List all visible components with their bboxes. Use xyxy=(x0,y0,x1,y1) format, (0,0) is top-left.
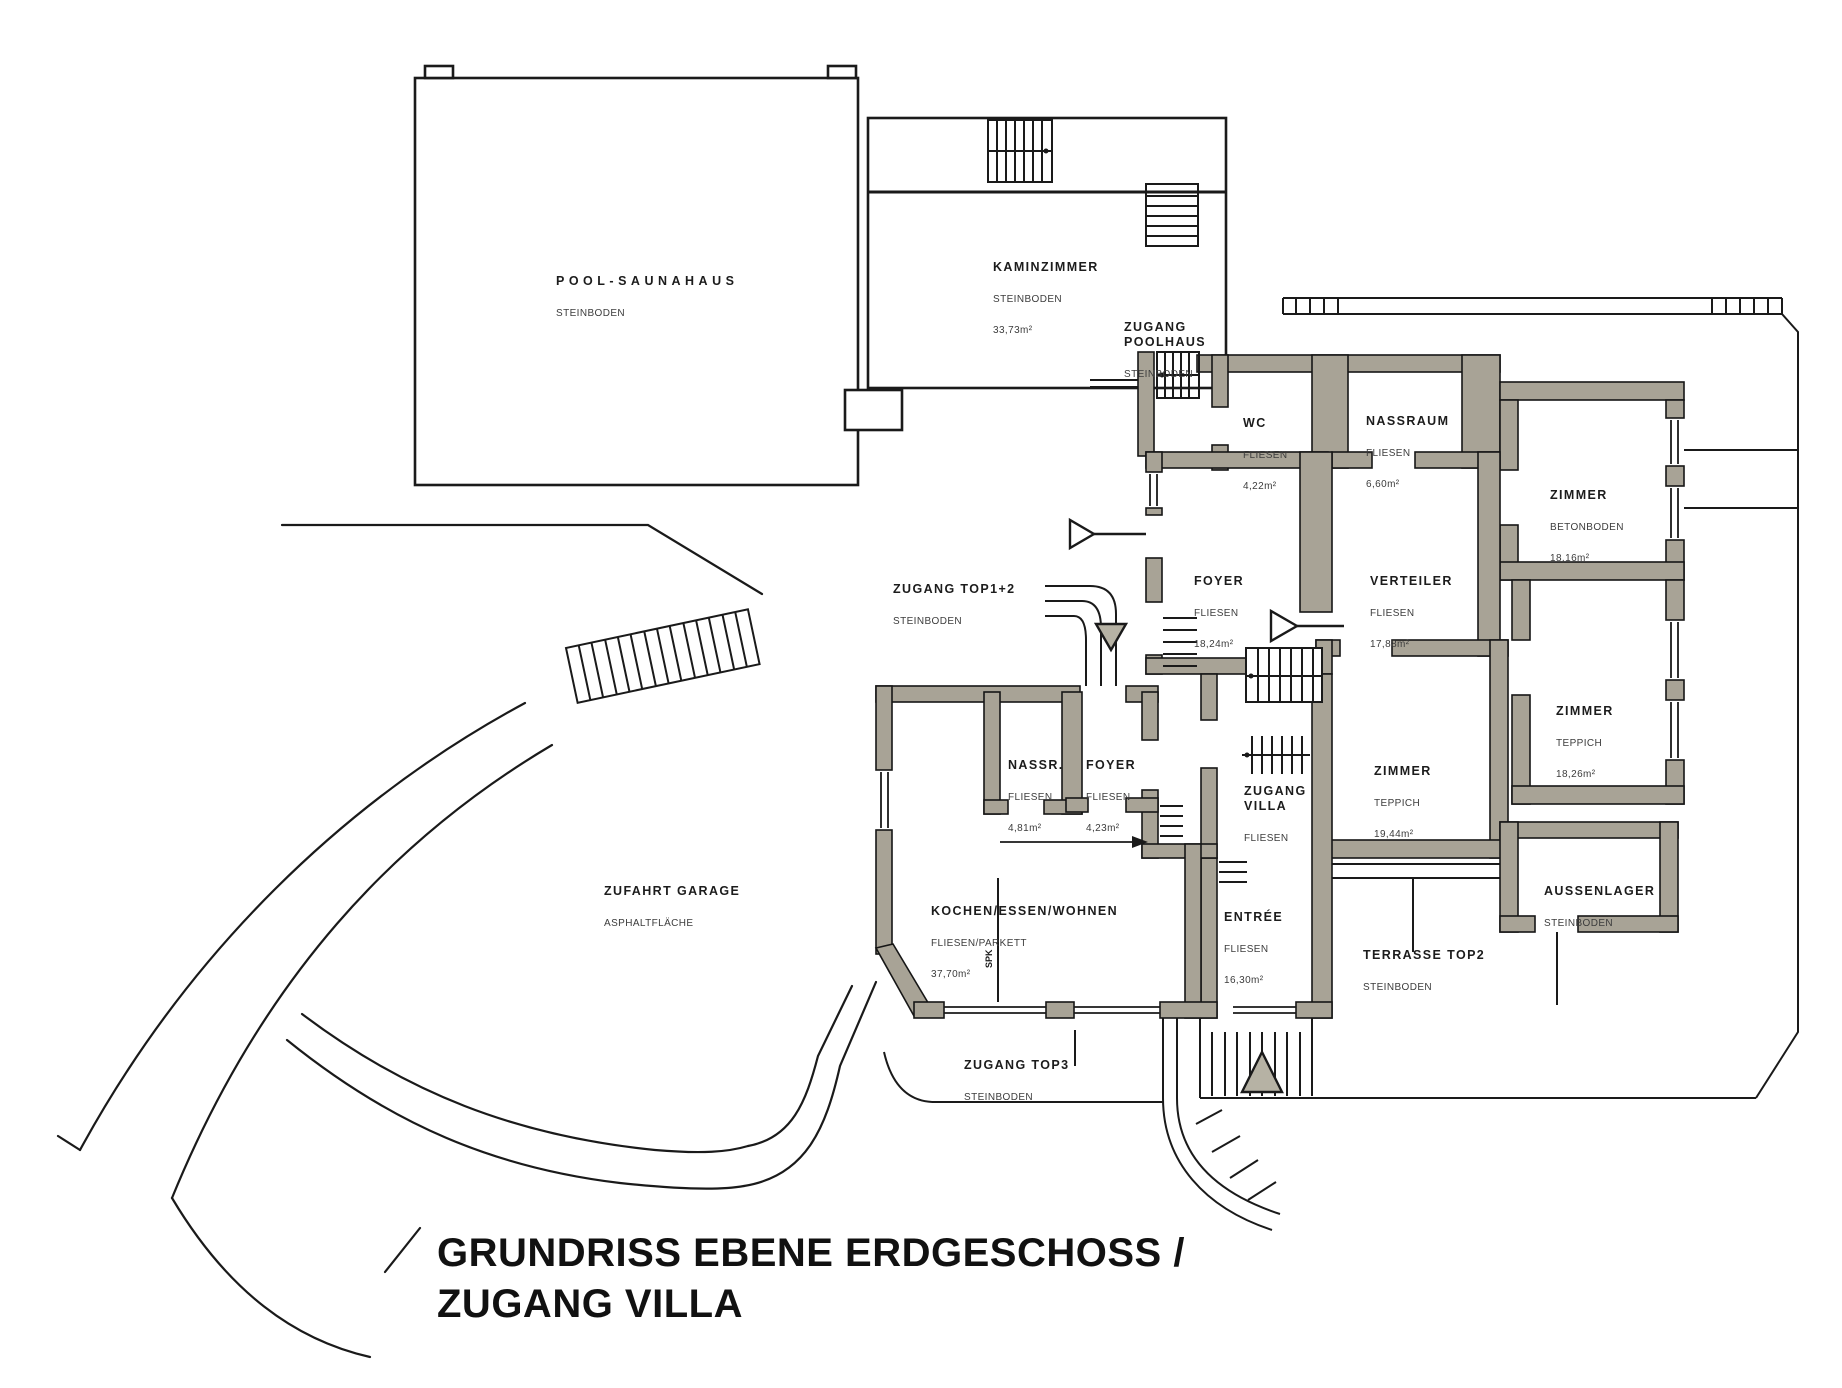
interior-stairs xyxy=(1157,352,1322,882)
floorplan-drawing: SPK xyxy=(0,0,1842,1388)
entrance-arrow-right-icon xyxy=(1070,520,1094,548)
kitchen-sink-note: SPK xyxy=(984,949,994,968)
pool-saunahaus-outline xyxy=(415,66,902,485)
kitchen-guide-arrow xyxy=(1000,836,1148,848)
plan-title-line2: ZUGANG VILLA xyxy=(437,1279,1185,1330)
plan-title-line1: GRUNDRISS EBENE ERDGESCHOSS / xyxy=(437,1228,1185,1279)
kaminzimmer-outline xyxy=(868,118,1226,388)
floorplan-canvas: SPK POOL-SAUNAHAUS STEINBODEN KAMINZIMME… xyxy=(0,0,1842,1388)
entrance-arrow-right-icon xyxy=(1271,611,1297,641)
plan-title: GRUNDRISS EBENE ERDGESCHOSS / ZUGANG VIL… xyxy=(437,1228,1185,1330)
outdoor-stairs-top12 xyxy=(566,609,760,702)
